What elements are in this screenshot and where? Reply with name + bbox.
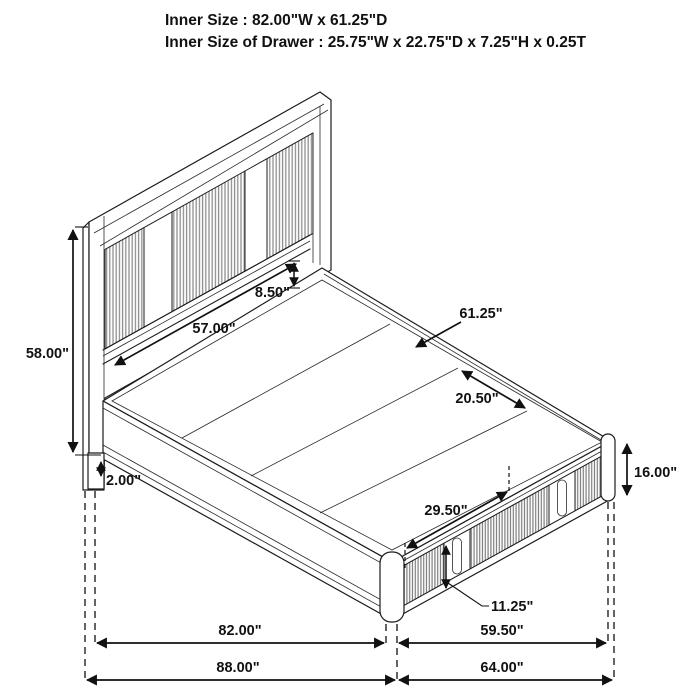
dim-label-inner-width: 82.00" [218, 623, 261, 639]
bed-dimension-diagram: 58.00" 57.00" 8.50" 61.25" 20.50" [0, 0, 700, 700]
headboard-plain-panel-2 [245, 159, 267, 272]
title-block: Inner Size : 82.00"W x 61.25"D Inner Siz… [165, 12, 586, 51]
dim-inner-width: 82.00" [97, 623, 384, 643]
title-line-1: Inner Size : 82.00"W x 61.25"D [165, 12, 387, 29]
dim-label-headboard-inner-width: 57.00" [192, 321, 235, 337]
corner-post-right [601, 434, 615, 501]
dim-label-drawer-front-height: 11.25" [491, 599, 533, 615]
dim-label-plank-width: 20.50" [455, 391, 498, 407]
dim-overall-depth: 64.00" [399, 660, 612, 680]
dim-label-headboard-gap: 8.50" [255, 285, 290, 301]
dim-label-side-rail-height: 16.00" [634, 465, 677, 481]
dim-label-headboard-height: 58.00" [26, 346, 69, 362]
dim-inner-depth-side: 59.50" [399, 623, 606, 643]
headboard-left-post-side [83, 222, 89, 490]
title-line-2: Inner Size of Drawer : 25.75"W x 22.75"D… [165, 34, 586, 51]
dim-overall-width: 88.00" [87, 660, 395, 680]
dim-label-deck-depth: 61.25" [459, 306, 502, 322]
technical-drawing-canvas: 58.00" 57.00" 8.50" 61.25" 20.50" [0, 0, 700, 700]
headboard-plain-panel-1 [144, 212, 172, 327]
dim-label-overall-depth: 64.00" [480, 660, 523, 676]
dim-label-overall-width: 88.00" [216, 660, 259, 676]
dim-label-drawer-width: 29.50" [424, 503, 467, 519]
dim-side-rail-height: 16.00" [627, 444, 677, 495]
dim-label-inner-depth-side: 59.50" [480, 623, 523, 639]
dim-label-floor-clearance: 2.00" [106, 473, 141, 489]
corner-post-front [380, 552, 404, 622]
